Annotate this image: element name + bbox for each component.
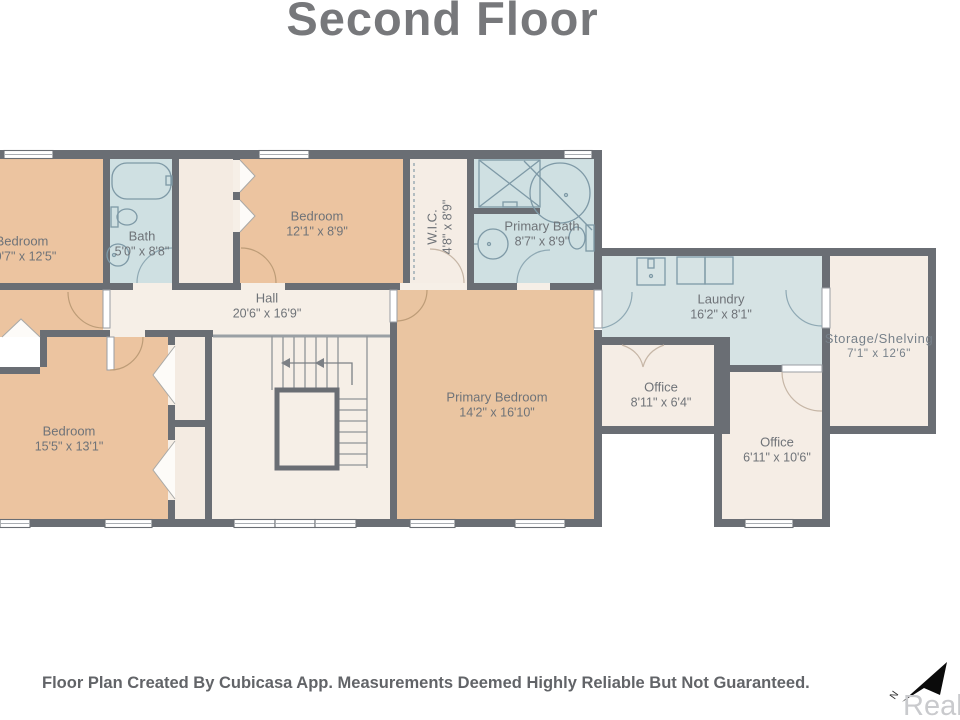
room-label-bedroom-tl: Bedroom 10'7" x 12'5" — [0, 233, 56, 264]
room-label-laundry: Laundry 16'2" x 8'1" — [690, 291, 752, 322]
floor-plan-page: Second Floor — [0, 0, 960, 720]
room-label-bedroom-bl: Bedroom 15'5" x 13'1" — [35, 423, 104, 454]
room-label-storage: Storage/Shelving 7'1" x 12'6" — [825, 331, 934, 361]
room-label-office-1: Office 8'11" x 6'4" — [631, 379, 692, 410]
room-label-bedroom-top: Bedroom 12'1" x 8'9" — [286, 208, 348, 239]
room-label-office-2: Office 6'11" x 10'6" — [743, 434, 811, 465]
stairwell-void — [277, 390, 337, 468]
room-label-primary-bedroom: Primary Bedroom 14'2" x 16'10" — [446, 389, 547, 420]
room-label-wic: W.I.C. 4'8" x 8'9" — [424, 200, 455, 255]
disclaimer-text: Floor Plan Created By Cubicasa App. Meas… — [42, 674, 810, 693]
room-label-primary-bath: Primary Bath 8'7" x 8'9" — [504, 218, 579, 249]
watermark-text: Realco — [903, 690, 960, 720]
closet-top-floor — [179, 159, 233, 283]
room-label-bath: Bath 5'0" x 8'8" — [115, 228, 170, 259]
room-label-hall: Hall 20'6" x 16'9" — [233, 290, 302, 321]
floor-plan-drawing — [0, 0, 960, 720]
bedroom-bl-closet-notch — [0, 337, 40, 367]
